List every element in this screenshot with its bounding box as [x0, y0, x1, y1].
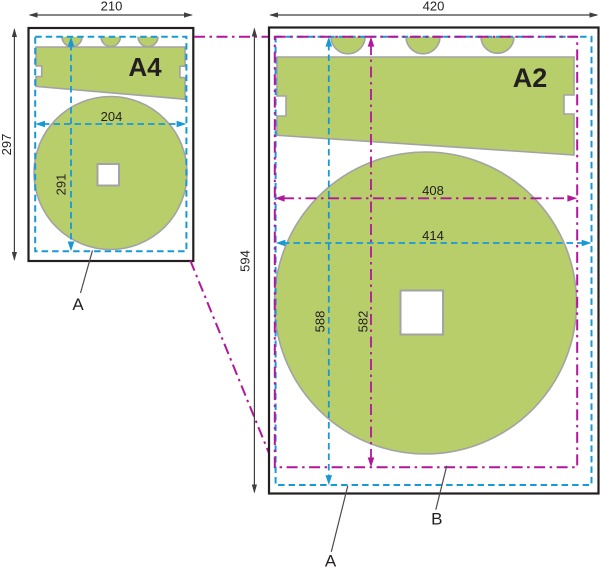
svg-text:291: 291: [54, 174, 69, 196]
svg-text:204: 204: [101, 109, 123, 124]
svg-text:297: 297: [0, 134, 14, 156]
svg-text:420: 420: [423, 0, 445, 14]
svg-text:B: B: [431, 509, 442, 528]
svg-text:A: A: [325, 552, 337, 571]
svg-text:582: 582: [356, 311, 371, 333]
svg-text:A2: A2: [513, 63, 548, 93]
svg-text:210: 210: [101, 0, 123, 14]
svg-text:594: 594: [238, 250, 253, 272]
svg-text:408: 408: [422, 183, 444, 198]
svg-text:414: 414: [422, 228, 444, 243]
svg-text:588: 588: [313, 311, 328, 333]
svg-text:A4: A4: [128, 52, 162, 82]
svg-text:A: A: [72, 295, 84, 314]
